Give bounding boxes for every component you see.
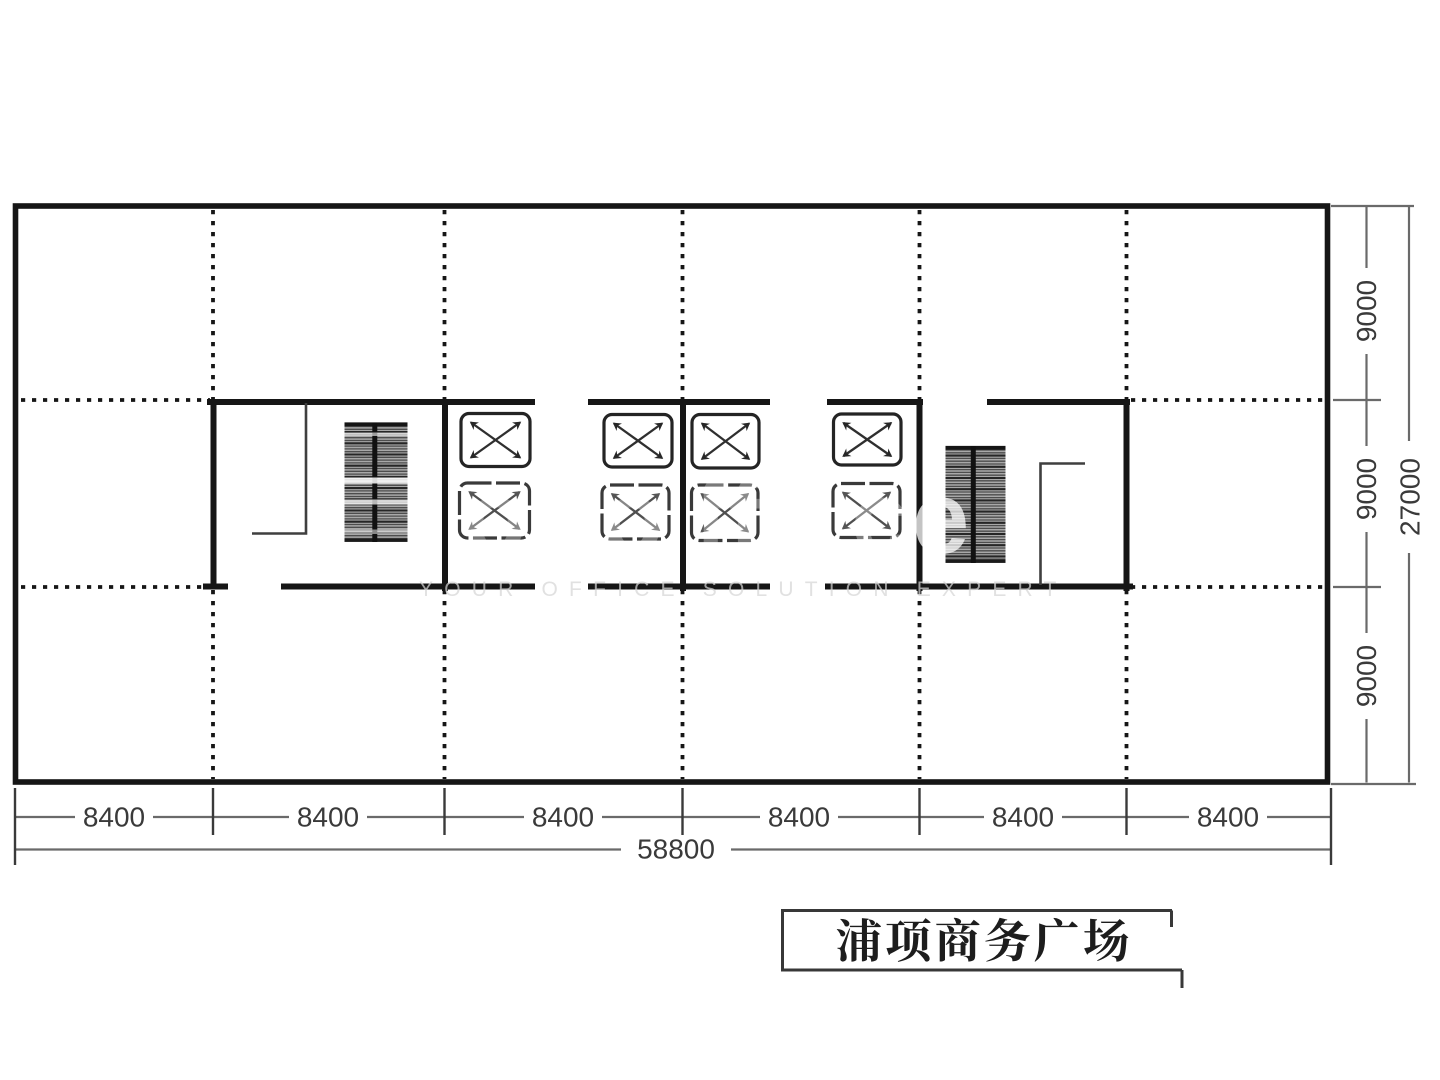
svg-text:e: e (912, 460, 969, 575)
svg-text:27000: 27000 (1395, 458, 1426, 536)
svg-text:8400: 8400 (297, 802, 359, 833)
svg-text:ffi: ffi (694, 460, 791, 575)
svg-text:o: o (464, 460, 527, 575)
svg-text:o: o (601, 460, 664, 575)
svg-text:8400: 8400 (768, 802, 830, 833)
svg-text:9000: 9000 (1351, 280, 1382, 342)
svg-text:c: c (851, 460, 908, 575)
svg-text:8400: 8400 (532, 802, 594, 833)
svg-text:58800: 58800 (637, 834, 715, 865)
svg-text:9000: 9000 (1351, 645, 1382, 707)
svg-text:8400: 8400 (83, 802, 145, 833)
svg-text:8400: 8400 (1197, 802, 1259, 833)
svg-text:YOUR OFFICE SOLUTION EXPERT: YOUR OFFICE SOLUTION EXPERT (419, 578, 1068, 601)
svg-text:9000: 9000 (1351, 458, 1382, 520)
svg-text:8400: 8400 (992, 802, 1054, 833)
